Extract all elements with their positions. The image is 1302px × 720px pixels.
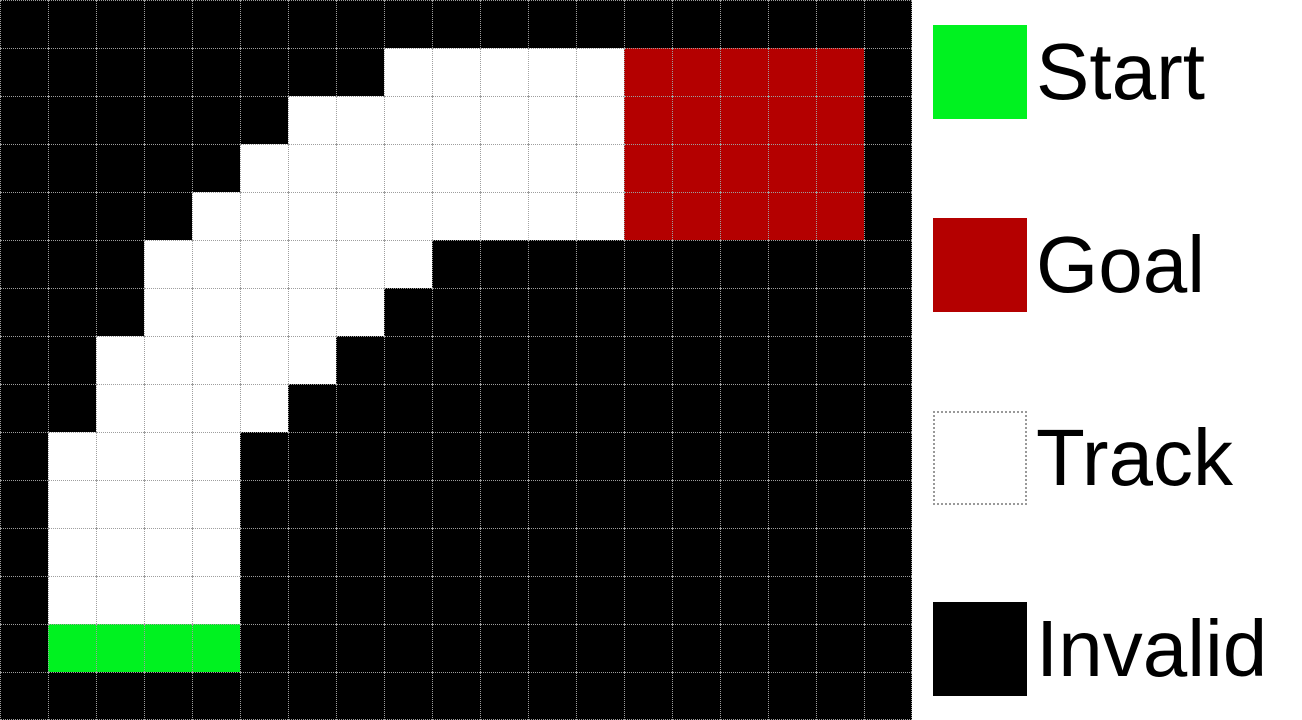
- grid-cell-invalid: [144, 96, 192, 144]
- grid-cell-start: [192, 624, 240, 672]
- grid-cell-invalid: [432, 0, 480, 48]
- grid-cell-track: [96, 384, 144, 432]
- grid-cell-track: [480, 48, 528, 96]
- grid-cell-track: [432, 192, 480, 240]
- grid-cell-invalid: [864, 336, 912, 384]
- grid-cell-track: [48, 432, 96, 480]
- grid-cell-invalid: [816, 384, 864, 432]
- grid-cell-goal: [816, 96, 864, 144]
- grid-cell-invalid: [864, 144, 912, 192]
- grid-cell-invalid: [672, 336, 720, 384]
- grid-cell-invalid: [528, 240, 576, 288]
- grid-cell-track: [528, 48, 576, 96]
- grid-cell-invalid: [720, 624, 768, 672]
- grid-cell-track: [144, 480, 192, 528]
- grid-cell-track: [288, 288, 336, 336]
- grid-cell-invalid: [384, 432, 432, 480]
- grid-cell-goal: [624, 144, 672, 192]
- grid-cell-start: [144, 624, 192, 672]
- grid-cell-invalid: [240, 576, 288, 624]
- grid-cell-invalid: [672, 528, 720, 576]
- grid-cell-track: [336, 192, 384, 240]
- grid-cell-invalid: [288, 432, 336, 480]
- grid-cell-track: [192, 240, 240, 288]
- grid-cell-track: [288, 96, 336, 144]
- grid-cell-invalid: [624, 336, 672, 384]
- grid-cell-goal: [672, 144, 720, 192]
- grid-cell-track: [384, 48, 432, 96]
- goal-swatch: [933, 218, 1027, 312]
- grid-cell-invalid: [864, 624, 912, 672]
- grid-cell-track: [288, 192, 336, 240]
- grid-cell-track: [240, 288, 288, 336]
- grid-cell-invalid: [432, 432, 480, 480]
- grid-cell-track: [48, 576, 96, 624]
- grid-cell-goal: [816, 48, 864, 96]
- grid-cell-invalid: [48, 384, 96, 432]
- grid-cell-track: [576, 96, 624, 144]
- grid-cell-goal: [720, 48, 768, 96]
- grid-cell-track: [144, 528, 192, 576]
- grid-cell-invalid: [96, 96, 144, 144]
- legend-item-track: Track: [933, 411, 1233, 505]
- grid-cell-invalid: [672, 240, 720, 288]
- grid-cell-invalid: [528, 624, 576, 672]
- grid-cell-track: [48, 480, 96, 528]
- grid-cell-track: [432, 48, 480, 96]
- racetrack-grid: [0, 0, 912, 720]
- grid-cell-track: [480, 144, 528, 192]
- grid-cell-track: [384, 144, 432, 192]
- grid-cell-track: [48, 528, 96, 576]
- grid-cell-invalid: [0, 480, 48, 528]
- grid-cell-invalid: [288, 48, 336, 96]
- grid-cell-invalid: [720, 0, 768, 48]
- grid-cell-invalid: [480, 624, 528, 672]
- grid-cell-track: [96, 528, 144, 576]
- invalid-swatch: [933, 602, 1027, 696]
- grid-cell-goal: [720, 144, 768, 192]
- grid-cell-invalid: [384, 0, 432, 48]
- grid-cell-invalid: [384, 480, 432, 528]
- grid-cell-invalid: [816, 528, 864, 576]
- grid-cell-invalid: [576, 336, 624, 384]
- grid-cell-track: [336, 144, 384, 192]
- grid-cell-invalid: [0, 672, 48, 720]
- grid-cell-invalid: [480, 528, 528, 576]
- grid-cell-invalid: [0, 192, 48, 240]
- grid-cell-invalid: [576, 240, 624, 288]
- grid-cell-invalid: [432, 240, 480, 288]
- grid-cell-invalid: [816, 336, 864, 384]
- grid-cell-invalid: [240, 48, 288, 96]
- grid-cell-invalid: [48, 96, 96, 144]
- grid-cell-invalid: [48, 0, 96, 48]
- grid-cell-track: [384, 96, 432, 144]
- grid-cell-invalid: [528, 672, 576, 720]
- grid-cell-invalid: [384, 624, 432, 672]
- grid-cell-invalid: [480, 336, 528, 384]
- grid-cell-invalid: [144, 144, 192, 192]
- grid-cell-invalid: [864, 384, 912, 432]
- grid-cell-invalid: [624, 240, 672, 288]
- grid-cell-invalid: [672, 432, 720, 480]
- grid-cell-invalid: [240, 480, 288, 528]
- grid-cell-invalid: [0, 384, 48, 432]
- grid-cell-invalid: [624, 0, 672, 48]
- grid-cell-invalid: [480, 480, 528, 528]
- grid-cell-goal: [768, 48, 816, 96]
- grid-cell-invalid: [816, 480, 864, 528]
- grid-cell-track: [144, 288, 192, 336]
- grid-cell-invalid: [768, 432, 816, 480]
- grid-cell-track: [480, 96, 528, 144]
- grid-cell-invalid: [624, 672, 672, 720]
- grid-cell-invalid: [528, 336, 576, 384]
- grid-cell-invalid: [0, 48, 48, 96]
- grid-cell-track: [240, 336, 288, 384]
- grid-cell-track: [576, 144, 624, 192]
- grid-cell-invalid: [144, 672, 192, 720]
- grid-cell-invalid: [576, 480, 624, 528]
- grid-cell-invalid: [864, 480, 912, 528]
- legend-label-goal: Goal: [1036, 225, 1205, 305]
- grid-cell-invalid: [864, 0, 912, 48]
- grid-cell-invalid: [192, 48, 240, 96]
- grid-cell-invalid: [144, 48, 192, 96]
- grid-cell-invalid: [672, 624, 720, 672]
- grid-cell-track: [192, 528, 240, 576]
- legend-item-goal: Goal: [933, 218, 1205, 312]
- grid-cell-invalid: [768, 576, 816, 624]
- grid-cell-invalid: [96, 672, 144, 720]
- grid-cell-invalid: [48, 48, 96, 96]
- grid-cell-track: [192, 336, 240, 384]
- legend-item-invalid: Invalid: [933, 602, 1267, 696]
- grid-cell-track: [96, 432, 144, 480]
- grid-cell-track: [240, 240, 288, 288]
- grid-cell-invalid: [768, 528, 816, 576]
- grid-cell-invalid: [624, 384, 672, 432]
- grid-cell-invalid: [816, 432, 864, 480]
- grid-cell-invalid: [624, 480, 672, 528]
- grid-cell-invalid: [480, 384, 528, 432]
- grid-cell-invalid: [336, 432, 384, 480]
- grid-cell-invalid: [0, 528, 48, 576]
- grid-cell-invalid: [288, 672, 336, 720]
- grid-cell-invalid: [768, 624, 816, 672]
- legend: Start Goal Track Invalid: [912, 0, 1302, 720]
- grid-cell-invalid: [624, 288, 672, 336]
- grid-cell-goal: [768, 192, 816, 240]
- grid-cell-invalid: [576, 624, 624, 672]
- grid-cell-invalid: [528, 0, 576, 48]
- grid-cell-track: [192, 192, 240, 240]
- grid-cell-invalid: [336, 480, 384, 528]
- grid-cell-invalid: [480, 288, 528, 336]
- grid-cell-invalid: [240, 672, 288, 720]
- grid-cell-invalid: [432, 672, 480, 720]
- grid-cell-invalid: [768, 0, 816, 48]
- grid-cell-invalid: [528, 528, 576, 576]
- grid-cell-invalid: [528, 432, 576, 480]
- grid-cell-track: [240, 192, 288, 240]
- grid-cell-invalid: [432, 480, 480, 528]
- grid-cell-invalid: [336, 576, 384, 624]
- grid-cell-invalid: [576, 576, 624, 624]
- grid-cell-invalid: [480, 576, 528, 624]
- grid-cell-invalid: [720, 240, 768, 288]
- grid-cell-invalid: [384, 672, 432, 720]
- grid-cell-invalid: [432, 624, 480, 672]
- grid-cell-track: [432, 96, 480, 144]
- grid-cell-invalid: [240, 432, 288, 480]
- grid-cell-track: [96, 480, 144, 528]
- legend-label-track: Track: [1036, 418, 1233, 498]
- grid-cell-invalid: [672, 672, 720, 720]
- grid-cell-invalid: [480, 0, 528, 48]
- grid-cell-invalid: [672, 576, 720, 624]
- grid-cell-invalid: [432, 528, 480, 576]
- grid-cell-invalid: [480, 672, 528, 720]
- grid-cell-goal: [624, 192, 672, 240]
- grid-cell-track: [96, 336, 144, 384]
- grid-cell-invalid: [0, 0, 48, 48]
- grid-cell-invalid: [192, 672, 240, 720]
- grid-cell-track: [528, 144, 576, 192]
- grid-cell-invalid: [624, 576, 672, 624]
- grid-cell-invalid: [432, 576, 480, 624]
- grid-cell-invalid: [48, 192, 96, 240]
- grid-cell-invalid: [0, 624, 48, 672]
- grid-cell-invalid: [864, 432, 912, 480]
- grid-cell-invalid: [240, 96, 288, 144]
- grid-cell-invalid: [96, 0, 144, 48]
- grid-cell-invalid: [528, 480, 576, 528]
- grid-cell-invalid: [768, 384, 816, 432]
- grid-cell-invalid: [528, 384, 576, 432]
- grid-cell-invalid: [96, 48, 144, 96]
- grid-cell-invalid: [672, 480, 720, 528]
- grid-cell-goal: [816, 144, 864, 192]
- grid-cell-track: [336, 96, 384, 144]
- grid-cell-invalid: [816, 672, 864, 720]
- grid-cell-invalid: [0, 576, 48, 624]
- racetrack-figure: Start Goal Track Invalid: [0, 0, 1302, 720]
- grid-cell-invalid: [720, 432, 768, 480]
- grid-cell-invalid: [768, 288, 816, 336]
- grid-cell-track: [576, 48, 624, 96]
- grid-cell-track: [192, 288, 240, 336]
- grid-cell-track: [192, 384, 240, 432]
- grid-cell-track: [288, 144, 336, 192]
- grid-cell-track: [336, 288, 384, 336]
- grid-cell-invalid: [768, 240, 816, 288]
- grid-cell-invalid: [432, 336, 480, 384]
- grid-cell-invalid: [384, 288, 432, 336]
- grid-cell-goal: [768, 96, 816, 144]
- grid-cell-invalid: [672, 384, 720, 432]
- grid-cell-invalid: [720, 336, 768, 384]
- grid-cell-track: [192, 432, 240, 480]
- grid-cell-invalid: [864, 48, 912, 96]
- grid-cell-start: [96, 624, 144, 672]
- grid-cell-invalid: [336, 624, 384, 672]
- grid-cell-invalid: [816, 288, 864, 336]
- grid-cell-start: [48, 624, 96, 672]
- grid-cell-invalid: [672, 0, 720, 48]
- track-swatch: [933, 411, 1027, 505]
- grid-cell-track: [144, 384, 192, 432]
- grid-cell-invalid: [480, 432, 528, 480]
- legend-label-invalid: Invalid: [1036, 609, 1267, 689]
- grid-cell-invalid: [624, 432, 672, 480]
- grid-cell-invalid: [144, 192, 192, 240]
- grid-cell-invalid: [384, 384, 432, 432]
- grid-cell-track: [144, 432, 192, 480]
- grid-cell-goal: [672, 192, 720, 240]
- grid-cell-invalid: [720, 288, 768, 336]
- grid-cell-invalid: [768, 480, 816, 528]
- grid-cell-invalid: [720, 480, 768, 528]
- grid-cell-invalid: [720, 384, 768, 432]
- grid-cell-invalid: [48, 336, 96, 384]
- grid-cell-invalid: [576, 432, 624, 480]
- grid-cell-invalid: [720, 672, 768, 720]
- legend-label-start: Start: [1036, 32, 1205, 112]
- grid-cell-invalid: [0, 336, 48, 384]
- grid-cell-invalid: [336, 0, 384, 48]
- grid-cell-goal: [720, 96, 768, 144]
- grid-cell-invalid: [384, 336, 432, 384]
- grid-cell-track: [576, 192, 624, 240]
- grid-cell-track: [384, 240, 432, 288]
- grid-cell-invalid: [192, 144, 240, 192]
- grid-cell-invalid: [816, 576, 864, 624]
- grid-cell-track: [288, 336, 336, 384]
- grid-cell-invalid: [336, 672, 384, 720]
- grid-cell-invalid: [576, 528, 624, 576]
- grid-cell-track: [240, 144, 288, 192]
- grid-cell-invalid: [0, 144, 48, 192]
- legend-item-start: Start: [933, 25, 1205, 119]
- grid-cell-invalid: [384, 528, 432, 576]
- grid-cell-track: [144, 240, 192, 288]
- grid-cell-invalid: [0, 288, 48, 336]
- grid-cell-invalid: [240, 624, 288, 672]
- grid-cell-invalid: [144, 0, 192, 48]
- grid-cell-track: [240, 384, 288, 432]
- grid-cell-invalid: [864, 288, 912, 336]
- grid-cell-invalid: [720, 528, 768, 576]
- grid-cell-track: [432, 144, 480, 192]
- grid-cell-invalid: [336, 528, 384, 576]
- grid-cell-invalid: [48, 288, 96, 336]
- grid-cell-invalid: [288, 480, 336, 528]
- grid-cell-goal: [672, 96, 720, 144]
- grid-cell-track: [192, 480, 240, 528]
- grid-cell-track: [192, 576, 240, 624]
- grid-cell-invalid: [480, 240, 528, 288]
- grid-cell-invalid: [576, 288, 624, 336]
- grid-cell-invalid: [336, 384, 384, 432]
- grid-cell-invalid: [288, 624, 336, 672]
- grid-cell-goal: [816, 192, 864, 240]
- grid-cell-invalid: [528, 288, 576, 336]
- grid-cell-goal: [672, 48, 720, 96]
- grid-cell-goal: [624, 48, 672, 96]
- grid-cell-track: [336, 240, 384, 288]
- grid-cell-invalid: [0, 240, 48, 288]
- grid-cell-invalid: [576, 0, 624, 48]
- grid-cell-invalid: [816, 240, 864, 288]
- grid-cell-invalid: [48, 240, 96, 288]
- grid-cell-invalid: [336, 336, 384, 384]
- grid-cell-invalid: [864, 192, 912, 240]
- grid-cell-invalid: [864, 672, 912, 720]
- grid-cell-invalid: [576, 672, 624, 720]
- grid-cell-invalid: [624, 528, 672, 576]
- grid-cell-invalid: [0, 96, 48, 144]
- grid-cell-goal: [768, 144, 816, 192]
- grid-cell-invalid: [576, 384, 624, 432]
- grid-cell-invalid: [0, 432, 48, 480]
- grid-cell-track: [480, 192, 528, 240]
- grid-cell-invalid: [672, 288, 720, 336]
- grid-cell-invalid: [624, 624, 672, 672]
- grid-cell-track: [288, 240, 336, 288]
- grid-cell-invalid: [864, 528, 912, 576]
- grid-cell-invalid: [816, 624, 864, 672]
- grid-cell-invalid: [192, 96, 240, 144]
- grid-cell-invalid: [720, 576, 768, 624]
- grid-cell-invalid: [288, 576, 336, 624]
- grid-cell-invalid: [864, 240, 912, 288]
- start-swatch: [933, 25, 1027, 119]
- grid-cell-invalid: [288, 384, 336, 432]
- grid-cell-track: [144, 336, 192, 384]
- grid-cell-invalid: [768, 336, 816, 384]
- grid-cell-invalid: [96, 288, 144, 336]
- grid-cell-invalid: [768, 672, 816, 720]
- grid-cell-invalid: [96, 240, 144, 288]
- grid-cell-track: [384, 192, 432, 240]
- grid-cell-invalid: [96, 144, 144, 192]
- grid-cell-invalid: [432, 384, 480, 432]
- grid-cell-invalid: [816, 0, 864, 48]
- grid-cell-invalid: [288, 528, 336, 576]
- grid-cell-goal: [624, 96, 672, 144]
- grid-cell-invalid: [864, 576, 912, 624]
- grid-cell-invalid: [48, 144, 96, 192]
- grid-cell-invalid: [240, 0, 288, 48]
- grid-cell-track: [528, 192, 576, 240]
- grid-cell-track: [144, 576, 192, 624]
- grid-cell-invalid: [432, 288, 480, 336]
- grid-cell-track: [528, 96, 576, 144]
- grid-cell-invalid: [96, 192, 144, 240]
- grid-cell-invalid: [528, 576, 576, 624]
- grid-cell-invalid: [336, 48, 384, 96]
- grid-cell-invalid: [864, 96, 912, 144]
- grid-cell-invalid: [192, 0, 240, 48]
- grid-cell-goal: [720, 192, 768, 240]
- grid-cell-invalid: [288, 0, 336, 48]
- grid-cell-invalid: [384, 576, 432, 624]
- grid-cell-track: [96, 576, 144, 624]
- grid-cell-invalid: [48, 672, 96, 720]
- grid-cell-invalid: [240, 528, 288, 576]
